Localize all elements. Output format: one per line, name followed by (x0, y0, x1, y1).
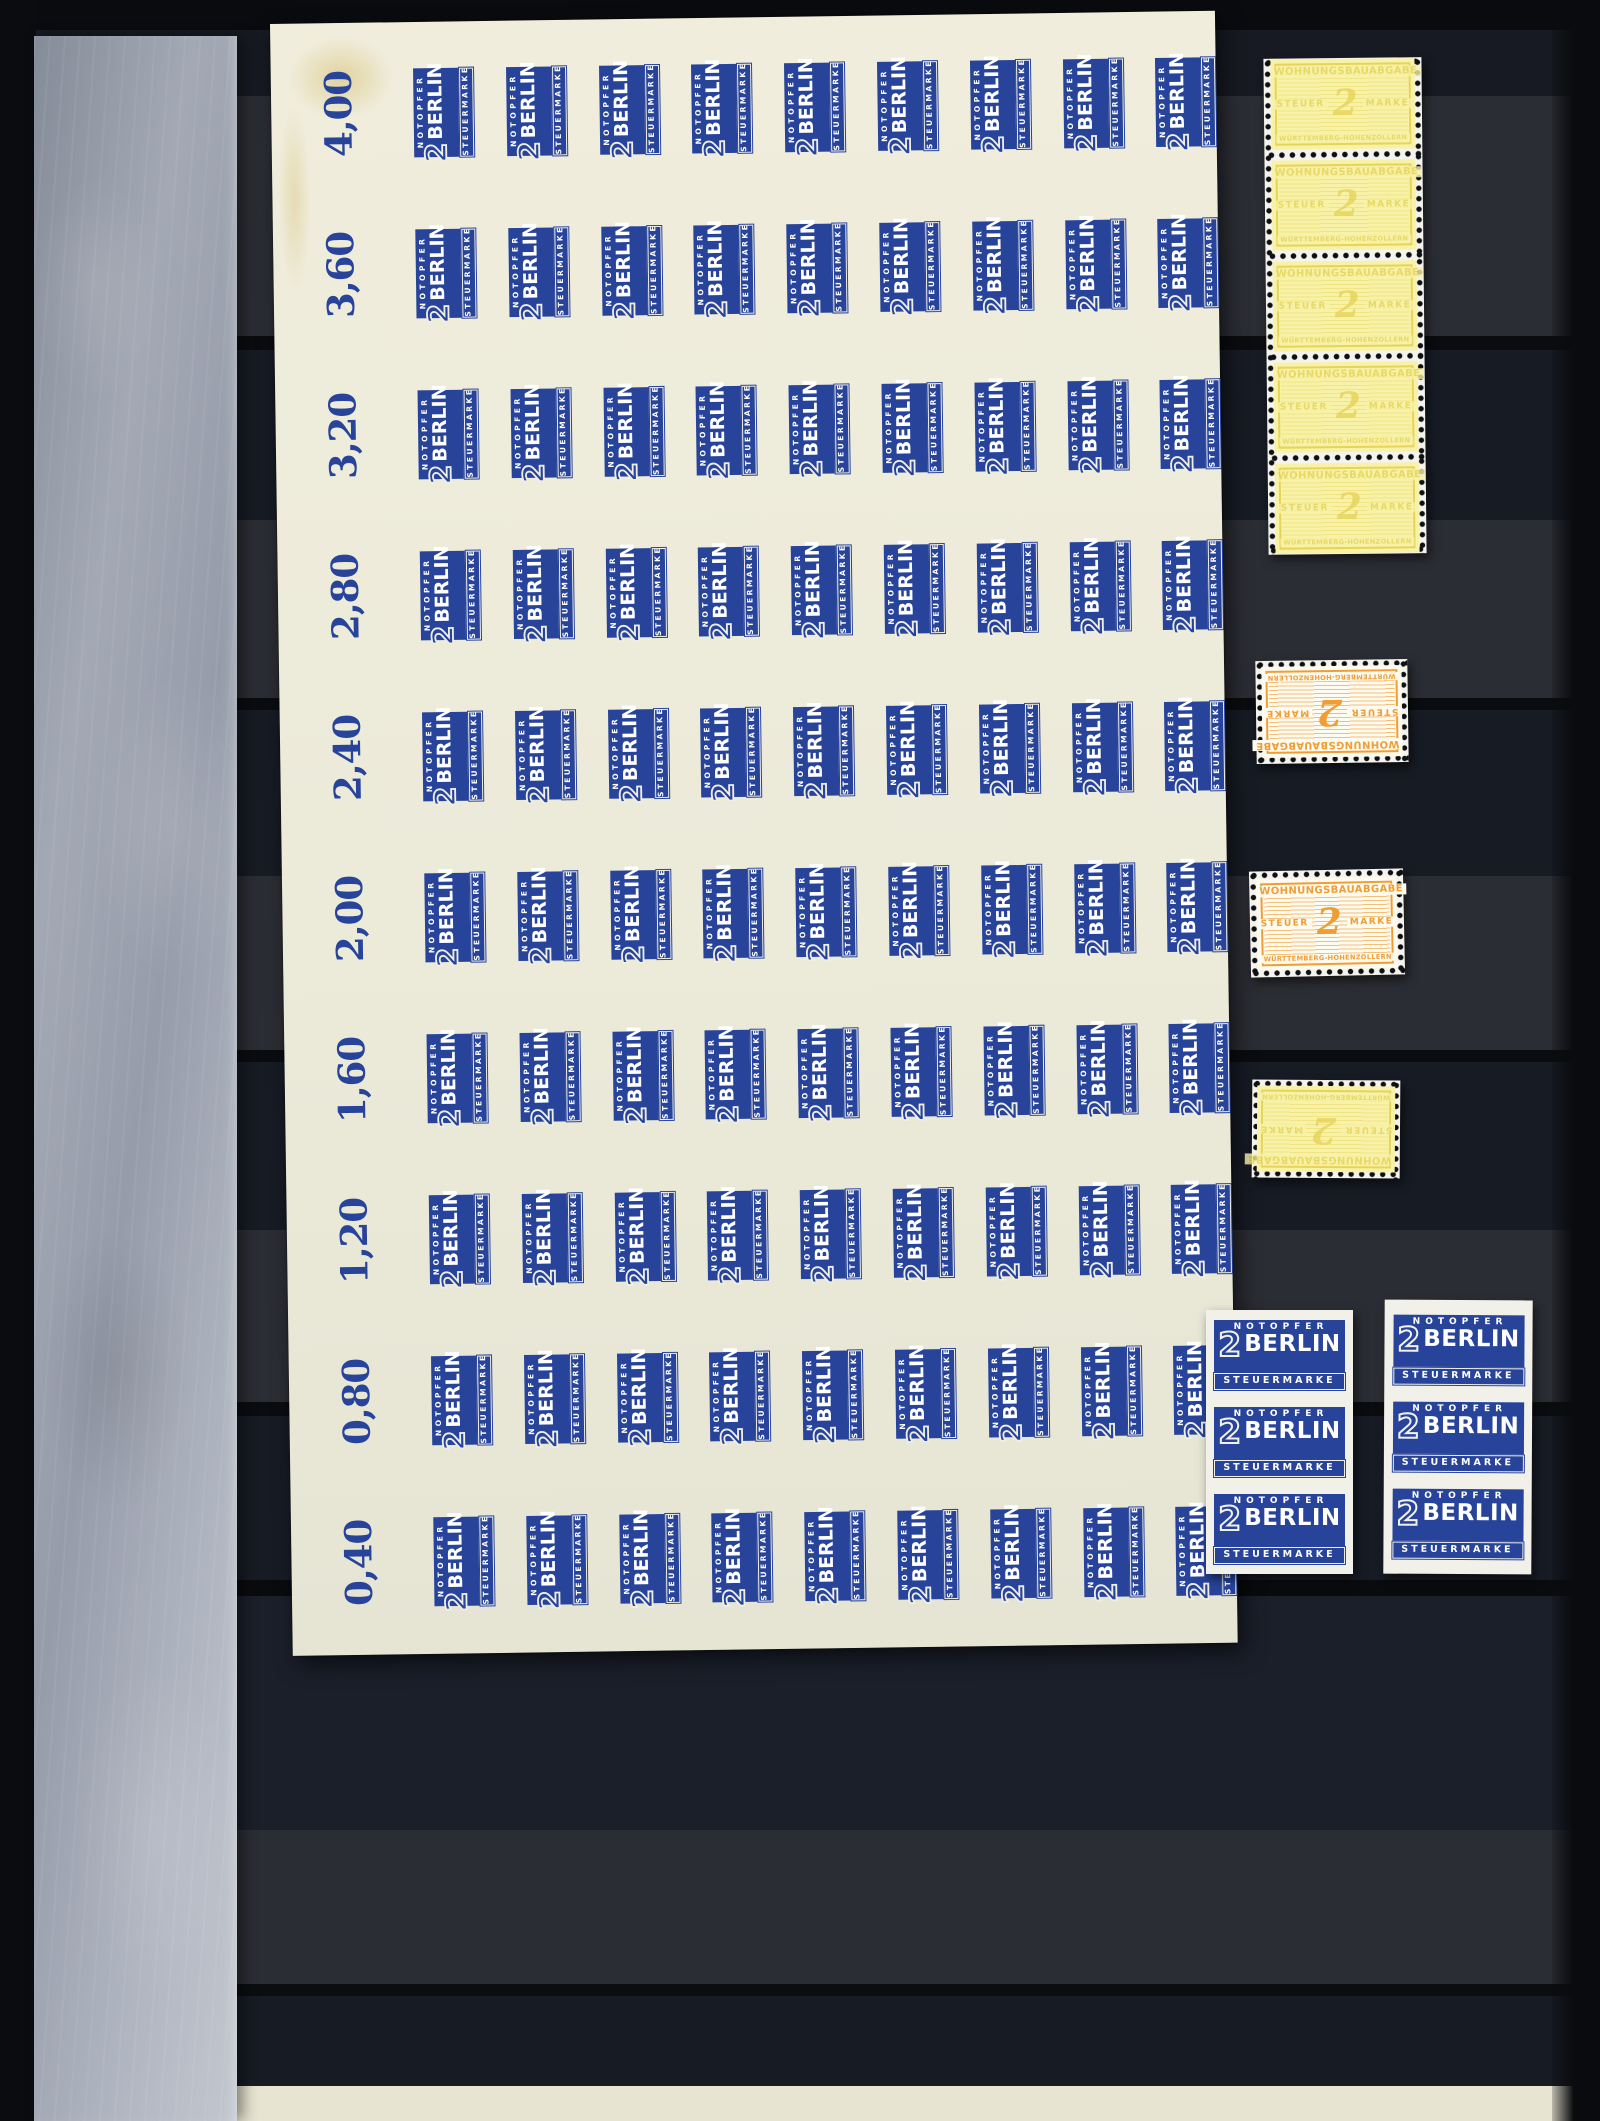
stamp-text-marke: MARKE (1365, 300, 1415, 311)
blue-stamp-strip-right: NOTOPFER 2 BERLIN STEUERMARKE NOTOPFER 2… (1383, 1300, 1532, 1575)
notopfer-stamp-panel: NOTOPFER 2 BERLIN (1162, 540, 1208, 629)
stamp-text-berlin: BERLIN (713, 702, 733, 779)
stamp-text-berlin: BERLIN (717, 1024, 737, 1101)
stamp-text-steuermarke: STEUERMARKE (1217, 1184, 1232, 1273)
stamp-numeral: 2 (622, 1105, 648, 1126)
stamp-text-wuerttemberg-hohenzollern: WÜRTTEMBERG-HOHENZOLLERN (1273, 335, 1417, 345)
stamp-text-berlin: BERLIN (1084, 697, 1104, 774)
stamp-numeral: 2 (713, 943, 739, 964)
notopfer-stamp: NOTOPFER 2 BERLIN STEUERMARKE (418, 548, 483, 642)
stamp-text-steuermarke: STEUERMARKE (1392, 1455, 1523, 1473)
stamp-numeral: 2 (722, 1587, 748, 1608)
stamp-text-steuermarke: STEUERMARKE (846, 1189, 861, 1278)
stamp-text-wohnungsbauabgabe: WOHNUNGSBAUABGABE (1272, 166, 1416, 179)
notopfer-stamp: NOTOPFER 2 BERLIN STEUERMARKE (520, 1191, 585, 1285)
notopfer-stamp: NOTOPFER 2 BERLIN STEUERMARKE (983, 1184, 1048, 1278)
stamp-numeral: 2 (1311, 1116, 1336, 1143)
notopfer-berlin-full-sheet: 4,00 NOTOPFER 2 BERLIN STEUERMARKE NOTOP… (270, 11, 1238, 1656)
stamp-numeral: 2 (534, 1429, 560, 1450)
stamp-text-steuermarke: STEUERMARKE (1215, 1023, 1230, 1112)
stamp-text-steuermarke: STEUERMARKE (1029, 1025, 1044, 1114)
stamp-text-steuermarke: STEUERMARKE (746, 707, 761, 796)
notopfer-stamp-panel: NOTOPFER 2 BERLIN (1171, 1184, 1217, 1273)
notopfer-stamp: NOTOPFER 2 BERLIN STEUERMARKE (411, 65, 476, 159)
stamp-text-berlin: BERLIN (903, 1021, 923, 1098)
stamp-text-berlin: BERLIN (441, 1189, 461, 1266)
stamp-text-wohnungsbauabgabe: WOHNUNGSBAUABGABE (1257, 1154, 1395, 1166)
notopfer-stamp-panel: NOTOPFER 2 BERLIN (696, 386, 742, 475)
stamp-text-berlin: BERLIN (706, 219, 726, 296)
stamp-text-marke: MARKE (1364, 199, 1414, 210)
stamp-text-steuermarke: STEUERMARKE (1392, 1542, 1523, 1560)
stamp-text-steuermarke: STEUERMARKE (925, 222, 940, 311)
stamp-numeral: 2 (441, 1430, 467, 1451)
notopfer-stamp: NOTOPFER 2 BERLIN STEUERMARKE (1078, 1344, 1143, 1438)
perforation-row (1264, 149, 1422, 160)
stamp-text-steuermarke: STEUERMARKE (1115, 541, 1130, 630)
notopfer-stamp: NOTOPFER 2 BERLIN STEUERMARKE (431, 1514, 496, 1608)
stamp-text-steuermarke: STEUERMARKE (939, 1188, 954, 1277)
stamp-text-berlin: BERLIN (1095, 1502, 1115, 1579)
stamp-text-berlin: BERLIN (523, 383, 543, 460)
stamp-text-wohnungsbauabgabe: WOHNUNGSBAUABGABE (1262, 738, 1402, 751)
stamp-text-berlin: BERLIN (1168, 52, 1188, 129)
notopfer-stamp-panel: NOTOPFER 2 BERLIN (1063, 58, 1109, 147)
stamp-numeral: 2 (1337, 494, 1362, 521)
stamp-text-marke: MARKE (1367, 502, 1417, 513)
stamp-text-berlin: BERLIN (534, 1187, 554, 1264)
notopfer-stamp: NOTOPFER 2 BERLIN STEUERMARKE (895, 1508, 960, 1602)
wohnungsbau-stamp: WOHNUNGSBAUABGABE STEUER 2 MARKE WÜRTTEM… (1275, 462, 1420, 554)
notopfer-stamp: NOTOPFER 2 BERLIN STEUERMARKE (701, 866, 766, 960)
notopfer-stamp: NOTOPFER 2 BERLIN STEUERMARKE (1072, 861, 1137, 955)
sheet-margin-value: 2,80 (322, 553, 367, 640)
notopfer-stamp-panel: NOTOPFER 2 BERLIN (1160, 379, 1206, 468)
stamp-numeral: 2 (611, 300, 637, 321)
notopfer-stamp-panel: NOTOPFER 2 BERLIN (1081, 1346, 1127, 1435)
stamp-text-berlin: BERLIN (430, 384, 450, 461)
stamp-text-steuermarke: STEUERMARKE (665, 1514, 680, 1603)
notopfer-stamp-panel: NOTOPFER 2 BERLIN (515, 710, 561, 799)
stamp-text-berlin: BERLIN (613, 220, 633, 297)
stamp-text-steuermarke: STEUERMARKE (1020, 381, 1035, 470)
stamp-numeral: 2 (1336, 393, 1361, 420)
stamp-text-steuermarke: STEUERMARKE (839, 706, 854, 795)
notopfer-stamp-panel: NOTOPFER 2 BERLIN (802, 1350, 848, 1439)
stamp-numeral: 2 (704, 299, 730, 320)
notopfer-stamp: NOTOPFER 2 BERLIN STEUERMARKE (689, 61, 754, 155)
stamp-text-steuermarke: STEUERMARKE (1214, 1373, 1345, 1390)
stamp-text-steuermarke: STEUERMARKE (742, 385, 757, 474)
stamp-text-berlin: BERLIN (1423, 1328, 1520, 1352)
stamp-text-berlin: BERLIN (446, 1511, 466, 1588)
notopfer-stamp: NOTOPFER 2 BERLIN STEUERMARKE (694, 383, 759, 477)
stamp-numeral: 2 (624, 1266, 650, 1287)
notopfer-stamp-panel: NOTOPFER 2 BERLIN (793, 706, 839, 795)
stamp-text-steuermarke: STEUERMARKE (1036, 1508, 1051, 1597)
stamp-text-berlin: BERLIN (1170, 213, 1190, 290)
stamp-numeral: 2 (434, 947, 460, 968)
stamp-numeral: 2 (812, 1425, 838, 1446)
stamp-numeral: 2 (520, 463, 546, 484)
stamp-numeral: 2 (1181, 1259, 1207, 1280)
notopfer-stamp-panel: NOTOPFER 2 BERLIN (979, 704, 1025, 793)
stamp-text-berlin: BERLIN (1244, 1420, 1340, 1443)
stamp-text-berlin: BERLIN (518, 61, 538, 138)
stamp-text-wuerttemberg-hohenzollern: WÜRTTEMBERG-HOHENZOLLERN (1257, 1093, 1395, 1102)
stamp-text-berlin: BERLIN (801, 379, 821, 456)
notopfer-stamp: NOTOPFER 2 BERLIN STEUERMARKE (508, 386, 573, 480)
notopfer-stamp-panel: NOTOPFER 2 BERLIN (789, 384, 835, 473)
stamp-text-steuermarke: STEUERMARKE (923, 61, 938, 150)
yellow-stamp-strip: WOHNUNGSBAUABGABE STEUER 2 MARKE WÜRTTEM… (1263, 57, 1426, 555)
stamp-text-berlin: BERLIN (889, 55, 909, 132)
notopfer-stamp-panel: NOTOPFER 2 BERLIN (420, 550, 466, 639)
stamp-text-steuermarke: STEUERMARKE (1206, 379, 1221, 468)
notopfer-stamp: NOTOPFER 2 BERLIN STEUERMARKE (599, 224, 664, 318)
stamp-text-berlin: BERLIN (1077, 214, 1097, 291)
stamp-text-berlin: BERLIN (708, 380, 728, 457)
stamp-numeral: 2 (1079, 616, 1105, 637)
stamp-numeral: 2 (529, 1107, 555, 1128)
stamp-text-berlin: BERLIN (989, 537, 1009, 614)
stamp-text-marke: MARKE (1366, 401, 1416, 412)
stamp-numeral: 2 (620, 944, 646, 965)
stamp-text-berlin: BERLIN (984, 215, 1004, 292)
notopfer-stamp-panel: NOTOPFER 2 BERLIN (983, 1026, 1029, 1115)
notopfer-stamp: NOTOPFER 2 BERLIN STEUERMARKE (427, 1192, 492, 1286)
stamp-text-wuerttemberg-hohenzollern: WÜRTTEMBERG-HOHENZOLLERN (1272, 234, 1416, 244)
stamp-numeral: 2 (527, 946, 553, 967)
stamp-text-steuermarke: STEUERMARKE (1113, 380, 1128, 469)
notopfer-stamp-panel: NOTOPFER 2 BERLIN (1067, 380, 1113, 469)
stamp-numeral: 2 (1091, 1421, 1117, 1442)
notopfer-stamp-panel: NOTOPFER 2 BERLIN (526, 1515, 572, 1604)
notopfer-stamp: NOTOPFER 2 BERLIN STEUERMARKE (1390, 1487, 1525, 1562)
stamp-numeral: 2 (615, 622, 641, 643)
stamp-text-berlin: BERLIN (437, 867, 457, 944)
notopfer-stamp-panel: NOTOPFER 2 BERLIN (612, 1031, 658, 1120)
notopfer-stamp: NOTOPFER 2 BERLIN STEUERMARKE (877, 220, 942, 314)
notopfer-stamp: NOTOPFER 2 BERLIN STEUERMARKE (986, 1345, 1051, 1439)
notopfer-stamp: NOTOPFER 2 BERLIN STEUERMARKE (612, 1190, 677, 1284)
stamp-album-photo: 4,00 NOTOPFER 2 BERLIN STEUERMARKE NOTOP… (0, 0, 1600, 2121)
perforation-row (1266, 351, 1424, 362)
stamp-numeral: 2 (894, 618, 920, 639)
stamp-numeral: 2 (430, 625, 456, 646)
notopfer-stamp-panel: NOTOPFER 2 BERLIN (879, 222, 925, 311)
notopfer-stamp-panel: NOTOPFER 2 BERLIN (599, 65, 645, 154)
stamp-text-berlin: BERLIN (1172, 373, 1192, 450)
stamp-text-berlin: BERLIN (991, 698, 1011, 775)
stamp-text-steuermarke: STEUERMARKE (475, 1194, 490, 1283)
stamp-text-berlin: BERLIN (428, 223, 448, 300)
notopfer-stamp-panel: NOTOPFER 2 BERLIN (703, 869, 749, 958)
notopfer-stamp: NOTOPFER 2 BERLIN STEUERMARKE (1153, 55, 1218, 149)
stamp-numeral: 2 (801, 620, 827, 641)
notopfer-stamp: NOTOPFER 2 BERLIN STEUERMARKE (511, 547, 576, 641)
stamp-text-steuermarke: STEUERMARKE (649, 387, 664, 476)
notopfer-stamp: NOTOPFER 2 BERLIN STEUERMARKE (1156, 216, 1221, 310)
notopfer-stamp-panel: NOTOPFER 2 BERLIN (431, 1355, 477, 1444)
stamp-numeral: 2 (1177, 937, 1203, 958)
notopfer-stamp: NOTOPFER 2 BERLIN STEUERMARKE (988, 1506, 1053, 1600)
notopfer-stamp-panel: NOTOPFER 2 BERLIN (985, 1187, 1031, 1276)
stamp-text-berlin: BERLIN (1244, 1507, 1340, 1530)
notopfer-stamp-panel: NOTOPFER 2 BERLIN (510, 388, 556, 477)
stamp-text-berlin: BERLIN (425, 62, 445, 139)
notopfer-stamp: NOTOPFER 2 BERLIN STEUERMARKE (977, 701, 1042, 795)
notopfer-stamp: NOTOPFER 2 BERLIN STEUERMARKE (882, 542, 947, 636)
stamp-numeral: 2 (1186, 1580, 1212, 1601)
notopfer-stamp-panel: NOTOPFER 2 BERLIN (895, 1349, 941, 1438)
stamp-text-steuermarke: STEUERMARKE (1201, 57, 1216, 146)
stamp-text-berlin: BERLIN (901, 860, 921, 937)
stamp-text-steuermarke: STEUERMARKE (473, 1033, 488, 1122)
notopfer-stamp-panel: NOTOPFER 2 BERLIN (981, 865, 1027, 954)
stamp-numeral: 2 (808, 1103, 834, 1124)
stamp-text-steuermarke: STEUERMARKE (1208, 540, 1223, 629)
stamp-text-berlin: BERLIN (711, 541, 731, 618)
orange-stamp-upright: WOHNUNGSBAUABGABE STEUER 2 MARKE WÜRTTEM… (1249, 868, 1405, 977)
notopfer-stamp: NOTOPFER 2 BERLIN STEUERMARKE (597, 63, 662, 157)
stamp-text-steuermarke: STEUERMARKE (1025, 703, 1040, 792)
notopfer-stamp-panel: NOTOPFER 2 BERLIN (800, 1189, 846, 1278)
notopfer-stamp-panel: NOTOPFER 2 BERLIN (1214, 1320, 1345, 1372)
notopfer-stamp: NOTOPFER 2 BERLIN STEUERMARKE (970, 218, 1035, 312)
notopfer-stamp: NOTOPFER 2 BERLIN STEUERMARKE (1063, 217, 1128, 311)
stamp-numeral: 2 (1397, 1325, 1420, 1355)
stamp-text-steuer: STEUER (1275, 200, 1329, 211)
stamp-numeral: 2 (437, 1108, 463, 1129)
notopfer-stamp: NOTOPFER 2 BERLIN STEUERMARKE (705, 1188, 770, 1282)
notopfer-stamp-panel: NOTOPFER 2 BERLIN (705, 1029, 751, 1118)
stamp-text-berlin: BERLIN (432, 545, 452, 622)
stamp-text-steuermarke: STEUERMARKE (1109, 58, 1124, 147)
stamp-text-steuer: STEUER (1278, 503, 1332, 514)
notopfer-stamp-panel: NOTOPFER 2 BERLIN (970, 60, 1016, 149)
stamp-text-berlin: BERLIN (704, 58, 724, 135)
notopfer-stamp-panel: NOTOPFER 2 BERLIN (608, 709, 654, 798)
stamp-numeral: 2 (814, 1586, 840, 1607)
stamp-numeral: 2 (532, 1268, 558, 1289)
stamp-text-steuermarke: STEUERMARKE (552, 66, 567, 155)
stamp-numeral: 2 (1075, 294, 1101, 315)
stamp-text-steuermarke: STEUERMARKE (466, 550, 481, 639)
notopfer-stamp-panel: NOTOPFER 2 BERLIN (517, 871, 563, 960)
stamp-text-wohnungsbauabgabe: WOHNUNGSBAUABGABE (1275, 469, 1419, 482)
stamp-numeral: 2 (1396, 1499, 1419, 1529)
sheet-margin-value: 0,40 (336, 1519, 381, 1606)
stamp-numeral: 2 (1218, 1330, 1241, 1360)
stamp-text-steuermarke: STEUERMARKE (559, 549, 574, 638)
stamp-text-steuermarke: STEUERMARKE (1214, 1460, 1345, 1477)
notopfer-stamp-panel: NOTOPFER 2 BERLIN (791, 545, 837, 634)
wohnungsbau-stamp: WOHNUNGSBAUABGABE STEUER 2 MARKE WÜRTTEM… (1261, 665, 1402, 758)
notopfer-stamp-panel: NOTOPFER 2 BERLIN (1069, 541, 1115, 630)
stamp-text-steuermarke: STEUERMARKE (663, 1353, 678, 1442)
notopfer-stamp-panel: NOTOPFER 2 BERLIN (881, 383, 927, 472)
stamp-text-steuermarke: STEUERMARKE (1016, 59, 1031, 148)
notopfer-stamp-panel: NOTOPFER 2 BERLIN (698, 547, 744, 636)
stamp-text-berlin: BERLIN (1088, 1019, 1108, 1096)
stamp-text-berlin: BERLIN (1422, 1502, 1519, 1526)
stamp-text-steuermarke: STEUERMARKE (1210, 701, 1225, 790)
notopfer-stamp-panel: NOTOPFER 2 BERLIN (1392, 1402, 1523, 1455)
stamp-text-steuermarke: STEUERMARKE (468, 711, 483, 800)
stamp-numeral: 2 (710, 782, 736, 803)
stamp-text-steuermarke: STEUERMARKE (1031, 1186, 1046, 1275)
stamp-text-steuermarke: STEUERMARKE (1214, 1547, 1345, 1564)
stamp-numeral: 2 (796, 298, 822, 319)
stamp-text-steuermarke: STEUERMARKE (568, 1193, 583, 1282)
notopfer-stamp: NOTOPFER 2 BERLIN STEUERMARKE (1067, 539, 1132, 633)
stamp-text-berlin: BERLIN (1175, 534, 1195, 611)
notopfer-stamp: NOTOPFER 2 BERLIN STEUERMARKE (610, 1029, 675, 1123)
notopfer-stamp-panel: NOTOPFER 2 BERLIN (418, 389, 464, 478)
wohnungsbau-stamp: WOHNUNGSBAUABGABE STEUER 2 MARKE WÜRTTEM… (1274, 361, 1419, 453)
stamp-text-steuermarke: STEUERMARKE (1204, 218, 1219, 307)
stamp-text-marke: MARKE (1257, 1124, 1307, 1134)
stamp-text-steuermarke: STEUERMARKE (658, 1031, 673, 1120)
stamp-numeral: 2 (889, 297, 915, 318)
notopfer-stamp-panel: NOTOPFER 2 BERLIN (795, 867, 841, 956)
notopfer-stamp: NOTOPFER 2 BERLIN STEUERMARKE (796, 1026, 861, 1120)
notopfer-stamp: NOTOPFER 2 BERLIN STEUERMARKE (603, 546, 668, 640)
notopfer-stamp-panel: NOTOPFER 2 BERLIN (506, 66, 552, 155)
notopfer-stamp: NOTOPFER 2 BERLIN STEUERMARKE (789, 543, 854, 637)
stamp-numeral: 2 (715, 1104, 741, 1125)
stamp-text-steuer: STEUER (1276, 301, 1330, 312)
notopfer-stamp-panel: NOTOPFER 2 BERLIN (897, 1510, 943, 1599)
sheet-margin-value: 3,20 (320, 392, 365, 479)
stamp-text-steuermarke: STEUERMARKE (749, 868, 764, 957)
stamp-text-berlin: BERLIN (724, 1507, 744, 1584)
notopfer-stamp: NOTOPFER 2 BERLIN STEUERMARKE (1162, 699, 1227, 793)
stamp-numeral: 2 (1086, 1099, 1112, 1120)
notopfer-stamp: NOTOPFER 2 BERLIN STEUERMARKE (424, 1031, 489, 1125)
stamp-numeral: 2 (719, 1426, 745, 1447)
notopfer-stamp-panel: NOTOPFER 2 BERLIN (890, 1027, 936, 1116)
notopfer-stamp: NOTOPFER 2 BERLIN STEUERMARKE (420, 709, 485, 803)
wohnungsbau-stamp: WOHNUNGSBAUABGABE STEUER 2 MARKE WÜRTTEM… (1273, 260, 1418, 352)
stamp-numeral: 2 (896, 779, 922, 800)
notopfer-stamp-panel: NOTOPFER 2 BERLIN (976, 543, 1022, 632)
stamp-text-steuermarke: STEUERMARKE (572, 1515, 587, 1604)
notopfer-stamp: NOTOPFER 2 BERLIN STEUERMARKE (1165, 860, 1230, 954)
stamp-text-berlin: BERLIN (525, 544, 545, 621)
notopfer-stamp: NOTOPFER 2 BERLIN STEUERMARKE (787, 382, 852, 476)
stamp-text-steuermarke: STEUERMARKE (651, 548, 666, 637)
stamp-text-steuermarke: STEUERMARKE (554, 227, 569, 316)
stamp-text-berlin: BERLIN (527, 705, 547, 782)
stamp-text-berlin: BERLIN (982, 54, 1002, 131)
stamp-numeral: 2 (1170, 454, 1196, 475)
stamp-text-steuermarke: STEUERMARKE (751, 1029, 766, 1118)
stamp-text-berlin: BERLIN (627, 1186, 647, 1263)
stamp-text-steuermarke: STEUERMARKE (556, 388, 571, 477)
notopfer-stamp-panel: NOTOPFER 2 BERLIN (974, 382, 1020, 471)
notopfer-stamp-panel: NOTOPFER 2 BERLIN (427, 1033, 473, 1122)
stamp-text-steuermarke: STEUERMARKE (563, 871, 578, 960)
notopfer-stamp: NOTOPFER 2 BERLIN STEUERMARKE (1081, 1505, 1146, 1599)
blue-stamp-strip-left: NOTOPFER 2 BERLIN STEUERMARKE NOTOPFER 2… (1206, 1310, 1353, 1574)
notopfer-stamp: NOTOPFER 2 BERLIN STEUERMARKE (1212, 1492, 1347, 1566)
notopfer-stamp-panel: NOTOPFER 2 BERLIN (990, 1509, 1036, 1598)
notopfer-stamp: NOTOPFER 2 BERLIN STEUERMARKE (698, 705, 763, 799)
notopfer-stamp-panel: NOTOPFER 2 BERLIN (1065, 219, 1111, 308)
stamp-text-steuermarke: STEUERMARKE (932, 705, 947, 794)
stamp-text-steuermarke: STEUERMARKE (934, 866, 949, 955)
stamp-text-steuermarke: STEUERMARKE (461, 228, 476, 317)
notopfer-stamp: NOTOPFER 2 BERLIN STEUERMARKE (784, 221, 849, 315)
notopfer-stamp: NOTOPFER 2 BERLIN STEUERMARKE (506, 225, 571, 319)
stamp-numeral: 2 (900, 1101, 926, 1122)
stamp-numeral: 2 (803, 781, 829, 802)
notopfer-stamp: NOTOPFER 2 BERLIN STEUERMARKE (1158, 377, 1223, 471)
notopfer-stamp: NOTOPFER 2 BERLIN STEUERMARKE (981, 1023, 1046, 1117)
notopfer-stamp: NOTOPFER 2 BERLIN STEUERMARKE (524, 1513, 589, 1607)
notopfer-stamp: NOTOPFER 2 BERLIN STEUERMARKE (615, 1351, 680, 1445)
stamp-text-berlin: BERLIN (1086, 858, 1106, 935)
sheet-stamp-grid: 4,00 NOTOPFER 2 BERLIN STEUERMARKE NOTOP… (278, 21, 1254, 1644)
stamp-text-berlin: BERLIN (530, 866, 550, 943)
stamp-numeral: 2 (991, 939, 1017, 960)
notopfer-stamp-panel: NOTOPFER 2 BERLIN (524, 1354, 570, 1443)
notopfer-stamp: NOTOPFER 2 BERLIN STEUERMARKE (884, 703, 949, 797)
notopfer-stamp: NOTOPFER 2 BERLIN STEUERMARKE (791, 704, 856, 798)
stamp-numeral: 2 (1165, 132, 1191, 153)
stamp-text-steuer: STEUER (1341, 1125, 1395, 1135)
notopfer-stamp: NOTOPFER 2 BERLIN STEUERMARKE (413, 226, 478, 320)
stamp-numeral: 2 (1168, 293, 1194, 314)
stamp-numeral: 2 (443, 1591, 469, 1612)
notopfer-stamp: NOTOPFER 2 BERLIN STEUERMARKE (1076, 1183, 1141, 1277)
stamp-numeral: 2 (1179, 1098, 1205, 1119)
stamp-text-steuermarke: STEUERMARKE (936, 1027, 951, 1116)
stamp-numeral: 2 (1317, 698, 1342, 725)
stamp-text-wohnungsbauabgabe: WOHNUNGSBAUABGABE (1273, 267, 1417, 280)
stamp-numeral: 2 (1218, 1504, 1241, 1534)
notopfer-stamp: NOTOPFER 2 BERLIN STEUERMARKE (979, 862, 1044, 956)
stamp-text-berlin: BERLIN (1423, 1415, 1520, 1439)
notopfer-stamp: NOTOPFER 2 BERLIN STEUERMARKE (1212, 1318, 1347, 1392)
sheet-margin-value: 0,80 (334, 1358, 379, 1445)
notopfer-stamp: NOTOPFER 2 BERLIN STEUERMARKE (782, 60, 847, 154)
stamp-text-berlin: BERLIN (443, 1350, 463, 1427)
stamp-text-berlin: BERLIN (1177, 695, 1197, 772)
stamp-numeral: 2 (1335, 292, 1360, 319)
notopfer-stamp: NOTOPFER 2 BERLIN STEUERMARKE (1167, 1021, 1232, 1115)
stamp-text-steuermarke: STEUERMARKE (656, 870, 671, 959)
perforation-row (1265, 250, 1423, 261)
wohnungsbau-stamp: WOHNUNGSBAUABGABE STEUER 2 MARKE WÜRTTEM… (1257, 1086, 1396, 1173)
stamp-numeral: 2 (987, 617, 1013, 638)
stamp-text-steuermarke: STEUERMARKE (1120, 863, 1135, 952)
notopfer-stamp: NOTOPFER 2 BERLIN STEUERMARKE (1070, 700, 1135, 794)
stamp-text-wohnungsbauabgabe: WOHNUNGSBAUABGABE (1274, 368, 1418, 381)
notopfer-stamp: NOTOPFER 2 BERLIN STEUERMARKE (875, 59, 940, 153)
stamp-text-berlin: BERLIN (896, 538, 916, 615)
notopfer-stamp-panel: NOTOPFER 2 BERLIN (877, 61, 923, 150)
notopfer-stamp-panel: NOTOPFER 2 BERLIN (784, 62, 830, 151)
stamp-text-berlin: BERLIN (808, 862, 828, 939)
notopfer-stamp: NOTOPFER 2 BERLIN STEUERMARKE (1391, 1313, 1526, 1388)
stamp-text-steuermarke: STEUERMARKE (1111, 219, 1126, 308)
notopfer-stamp-panel: NOTOPFER 2 BERLIN (893, 1188, 939, 1277)
stamp-text-wohnungsbauabgabe: WOHNUNGSBAUABGABE (1270, 65, 1414, 78)
notopfer-stamp: NOTOPFER 2 BERLIN STEUERMARKE (696, 544, 761, 638)
